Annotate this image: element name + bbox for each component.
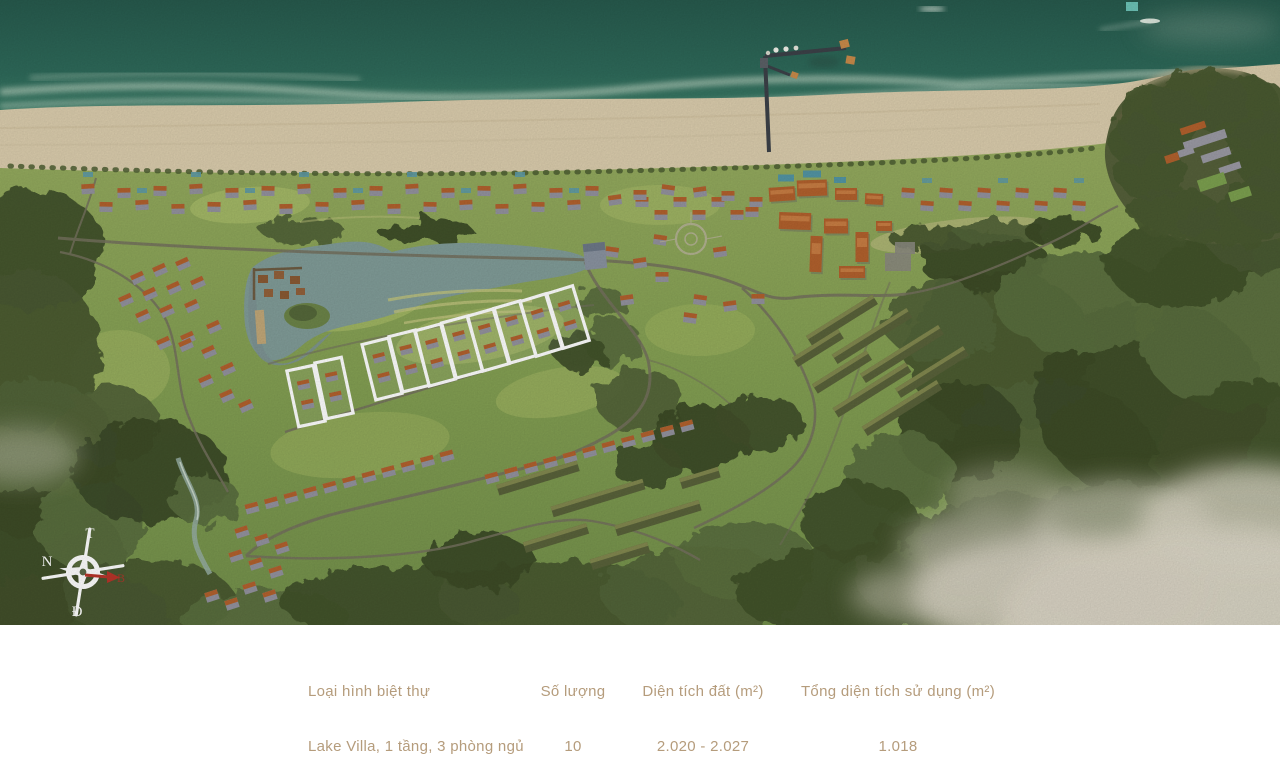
villa (531, 202, 544, 212)
villa (315, 202, 328, 212)
villa (683, 312, 697, 324)
building (769, 186, 798, 204)
villa (655, 210, 668, 220)
building (876, 221, 894, 233)
building (797, 179, 829, 198)
villa (279, 204, 292, 214)
pool (83, 172, 93, 177)
villa (567, 200, 581, 211)
villa (387, 204, 400, 214)
forest-blob (612, 444, 684, 488)
pool (803, 171, 821, 178)
villa (1053, 188, 1067, 199)
building (856, 232, 871, 264)
villa (459, 200, 473, 211)
pool (299, 172, 309, 177)
villa (713, 246, 727, 258)
villa (653, 234, 667, 246)
villa (441, 188, 454, 198)
villa (608, 194, 622, 206)
masterplan-map: T N Đ B (0, 0, 1280, 625)
pool (137, 188, 147, 193)
forest-blob (377, 219, 473, 243)
villa (297, 184, 311, 195)
villa (722, 191, 735, 201)
parking-lot (895, 242, 915, 254)
villa (351, 200, 365, 211)
building (835, 188, 859, 202)
corner-mark (1126, 2, 1138, 11)
villa (920, 201, 934, 212)
pool (515, 172, 525, 177)
villa (977, 188, 991, 199)
villa (1072, 201, 1086, 212)
villa (207, 202, 220, 212)
compass-label-top: T (85, 526, 94, 542)
building (839, 266, 867, 280)
pool (353, 188, 363, 193)
villa (746, 207, 759, 217)
villa (633, 257, 647, 269)
villa (656, 272, 669, 282)
map-svg: T N Đ B (0, 0, 1280, 625)
villa (661, 184, 675, 196)
col-header-villa-type: Loại hình biệt thự (308, 681, 518, 703)
villa (693, 210, 706, 220)
col-header-land-area: Diện tích đất (m²) (628, 681, 778, 703)
pool (461, 188, 471, 193)
villa (939, 188, 953, 199)
villa (189, 184, 203, 195)
compass-label-bottom: Đ (72, 604, 83, 620)
pool (569, 188, 579, 193)
cell-quantity: 10 (518, 736, 628, 758)
building (824, 219, 850, 236)
villa (81, 184, 95, 195)
pool (245, 188, 255, 193)
villa (369, 186, 382, 196)
villa (225, 188, 238, 198)
villa (634, 190, 647, 200)
villa (405, 184, 419, 195)
pool (407, 172, 417, 177)
compass-label-left: N (42, 554, 53, 570)
villa-table-header: Loại hình biệt thự Số lượng Diện tích đấ… (308, 681, 1280, 703)
villa (605, 246, 619, 258)
villa (693, 186, 707, 198)
compass-label-right: B (117, 571, 125, 585)
pool (191, 172, 201, 177)
col-header-total-area: Tổng diện tích sử dụng (m²) (778, 681, 1018, 703)
info-panel: Loại hình biệt thự Số lượng Diện tích đấ… (0, 625, 1280, 782)
building (779, 212, 813, 232)
villa (620, 294, 634, 306)
villa (693, 294, 707, 306)
villa (750, 197, 763, 207)
pool (998, 178, 1008, 183)
forest-blob (1107, 116, 1163, 164)
villa (135, 200, 149, 211)
villa (153, 186, 166, 196)
table-row: Lake Villa, 1 tầng, 3 phòng ngủ 10 2.020… (308, 736, 1280, 758)
cell-villa-type: Lake Villa, 1 tầng, 3 phòng ngủ (308, 736, 518, 758)
parking-lot (885, 253, 911, 271)
villa (243, 200, 257, 211)
building (583, 242, 608, 270)
villa (752, 294, 765, 304)
villa (333, 188, 346, 198)
masterplan-page: T N Đ B Loại hình (0, 0, 1280, 782)
building (865, 193, 885, 207)
cell-total-area: 1.018 (778, 736, 1018, 758)
villa (731, 210, 744, 220)
villa (423, 202, 436, 212)
villa (477, 186, 490, 196)
villa (261, 186, 274, 196)
villa (171, 204, 184, 214)
villa (585, 186, 598, 196)
meadow (645, 304, 755, 356)
col-header-quantity: Số lượng (518, 681, 628, 703)
villa (958, 201, 972, 212)
villa (674, 197, 687, 207)
villa (495, 204, 508, 214)
villa (996, 201, 1010, 212)
villa (1034, 201, 1048, 212)
pool (834, 177, 846, 183)
pool (778, 175, 794, 182)
villa (1015, 188, 1029, 199)
building (809, 236, 824, 274)
villa (99, 202, 112, 212)
villa (549, 188, 562, 198)
cell-land-area: 2.020 - 2.027 (628, 736, 778, 758)
pool (922, 178, 932, 183)
forest-blob (720, 396, 804, 448)
forest-blob (170, 475, 240, 525)
villa (117, 188, 130, 198)
villa (513, 184, 527, 195)
villa (723, 300, 737, 312)
villa (901, 188, 915, 199)
pool (1074, 178, 1084, 183)
